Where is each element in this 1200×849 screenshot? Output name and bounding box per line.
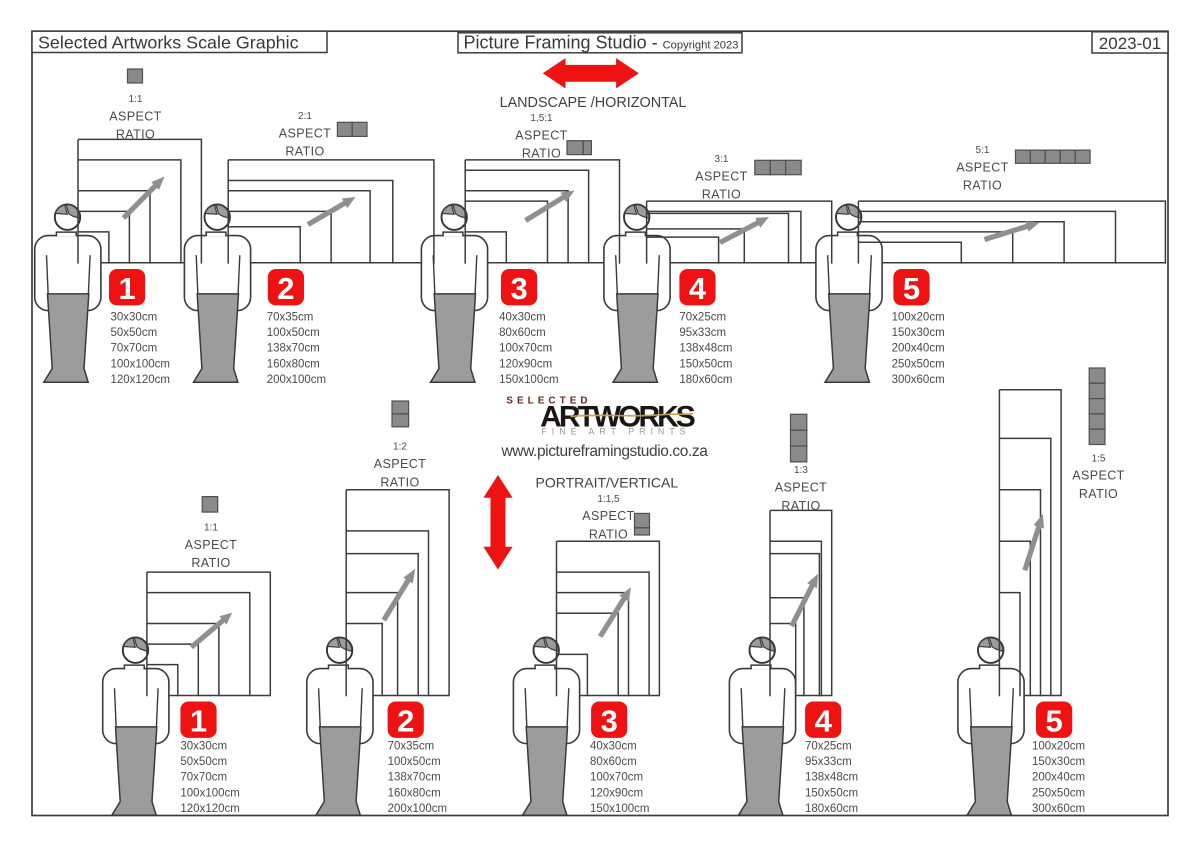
svg-text:RATIO: RATIO — [781, 499, 820, 513]
svg-text:1:5: 1:5 — [1092, 453, 1106, 464]
svg-text:ASPECT: ASPECT — [695, 169, 747, 183]
svg-text:100x20cm 150x30cm 200x40cm 250: 100x20cm 150x30cm 200x40cm 250x50cm 300x… — [1032, 741, 1088, 815]
svg-text:RATIO: RATIO — [191, 556, 230, 570]
svg-text:5:1: 5:1 — [976, 145, 990, 156]
svg-text:30x30cm 50x50cm 70x70cm 100x10: 30x30cm 50x50cm 70x70cm 100x100cm 120x12… — [180, 741, 243, 815]
svg-text:70x25cm 95x33cm 138x48cm 150x5: 70x25cm 95x33cm 138x48cm 150x50cm 180x60… — [805, 741, 861, 815]
svg-text:1:3: 1:3 — [794, 465, 808, 476]
svg-text:2: 2 — [397, 704, 414, 739]
svg-text:RATIO: RATIO — [702, 188, 741, 202]
svg-text:2:1: 2:1 — [298, 111, 312, 122]
svg-text:70x35cm 100x50cm 138x70cm 160x: 70x35cm 100x50cm 138x70cm 160x80cm 200x1… — [267, 312, 326, 386]
svg-text:LANDSCAPE /HORIZONTAL: LANDSCAPE /HORIZONTAL — [500, 95, 687, 111]
svg-text:70x25cm 95x33cm 138x48cm 150x5: 70x25cm 95x33cm 138x48cm 150x50cm 180x60… — [679, 312, 735, 386]
svg-text:1: 1 — [118, 271, 135, 306]
svg-text:ASPECT: ASPECT — [582, 509, 634, 523]
svg-text:1:2: 1:2 — [393, 442, 407, 453]
svg-text:ASPECT: ASPECT — [775, 481, 827, 495]
svg-text:1:1: 1:1 — [129, 94, 143, 105]
svg-text:RATIO: RATIO — [116, 128, 155, 142]
svg-text:30x30cm 50x50cm 70x70cm 100x10: 30x30cm 50x50cm 70x70cm 100x100cm 120x12… — [111, 312, 174, 386]
svg-text:ASPECT: ASPECT — [515, 128, 567, 142]
svg-text:www.pictureframingstudio.co.za: www.pictureframingstudio.co.za — [501, 443, 709, 460]
svg-text:40x30cm 80x60cm 100x70cm 120x9: 40x30cm 80x60cm 100x70cm 120x90cm 150x10… — [590, 741, 649, 815]
svg-text:5: 5 — [903, 271, 920, 306]
svg-text:5: 5 — [1045, 704, 1062, 739]
svg-text:RATIO: RATIO — [380, 475, 419, 489]
svg-text:ASPECT: ASPECT — [279, 126, 331, 140]
svg-text:RATIO: RATIO — [589, 527, 628, 541]
svg-text:3: 3 — [510, 271, 527, 306]
svg-text:RATIO: RATIO — [963, 179, 1002, 193]
svg-text:ASPECT: ASPECT — [956, 160, 1008, 174]
svg-text:RATIO: RATIO — [522, 147, 561, 161]
svg-text:FINE ART PRINTS: FINE ART PRINTS — [541, 427, 690, 437]
svg-text:RATIO: RATIO — [1079, 487, 1118, 501]
svg-text:3:1: 3:1 — [715, 154, 729, 165]
svg-text:70x35cm 100x50cm 138x70cm 160x: 70x35cm 100x50cm 138x70cm 160x80cm 200x1… — [388, 741, 447, 815]
svg-text:100x20cm 150x30cm 200x40cm 250: 100x20cm 150x30cm 200x40cm 250x50cm 300x… — [892, 312, 948, 386]
svg-text:4: 4 — [689, 271, 707, 306]
svg-text:3: 3 — [601, 704, 618, 739]
svg-text:2023-01: 2023-01 — [1099, 34, 1161, 53]
svg-text:ASPECT: ASPECT — [109, 109, 161, 123]
svg-text:1:1: 1:1 — [204, 522, 218, 533]
svg-text:40x30cm 80x60cm 100x70cm 120x9: 40x30cm 80x60cm 100x70cm 120x90cm 150x10… — [499, 312, 558, 386]
svg-text:4: 4 — [815, 704, 833, 739]
svg-text:RATIO: RATIO — [285, 145, 324, 159]
svg-text:2: 2 — [277, 271, 294, 306]
svg-text:PORTRAIT/VERTICAL: PORTRAIT/VERTICAL — [535, 474, 678, 490]
svg-text:ASPECT: ASPECT — [1072, 469, 1124, 483]
svg-text:1: 1 — [190, 704, 207, 739]
svg-text:1,5:1: 1,5:1 — [530, 113, 553, 124]
svg-text:1:1,5: 1:1,5 — [597, 494, 620, 505]
svg-text:Selected Artworks Scale Graphi: Selected Artworks Scale Graphic — [38, 32, 299, 52]
svg-text:ASPECT: ASPECT — [185, 538, 237, 552]
svg-text:ASPECT: ASPECT — [374, 457, 426, 471]
